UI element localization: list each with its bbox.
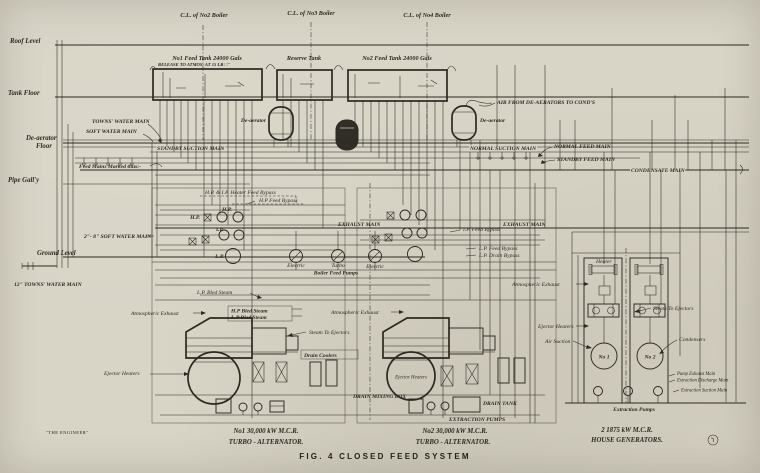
deaerator-right-vessel [452, 106, 476, 140]
reserve-tank [277, 70, 332, 100]
unit1-type-label: TURBO - ALTERNATOR. [229, 439, 304, 446]
pipe-gallery-label: Pipe Gall'y [8, 177, 40, 184]
feed-mains-marked-label: Feed Mains Marked thus:- [79, 164, 141, 170]
heater-cluster-2: I.P. Feed Bypass L.P. Feed Bypass L.P. D… [372, 210, 520, 262]
atmos-exhaust-right-label: Atmospheric Exhaust [511, 282, 560, 288]
deaerator-floor-label-2: Floor [36, 143, 52, 150]
pump-exhaust-main-label: Pump Exhaust Main [676, 372, 716, 377]
unit2-rating-label: No2 30,000 kW M.C.R. [421, 428, 487, 435]
extraction-suction-main-label: Extraction Suction Main [680, 389, 728, 394]
condensate-main-label: CONDENSATE MAIN [631, 168, 686, 174]
cl-no2-boiler-label: C.L. of No2 Boiler [180, 12, 228, 19]
closed-feed-system-diagram: Roof Level Tank Floor De-aerator Floor P… [0, 0, 760, 473]
drain-mixing-box-label: DRAIN MIXING BOX [352, 394, 406, 400]
bypass-hp-label: H.P Feed Bypass [258, 198, 298, 204]
atmos-exhaust-center-label: Atmospheric Exhaust [330, 310, 379, 316]
extraction-discharge-main-label: Extraction Discharge Main [676, 379, 729, 384]
heater-cluster-1: H.P. & I.P. Heater Feed Bypass H.P Feed … [189, 190, 304, 264]
boiler-feed-pumps: Electric Turbo Electric Boiler Feed Pump… [286, 231, 384, 277]
printers-mark [708, 435, 718, 445]
soft-water-2-8-label: 2"- 8" SOFT WATER MAIN [83, 234, 152, 240]
ip-label: I.P. [215, 227, 224, 233]
scanned-diagram-page: Roof Level Tank Floor De-aerator Floor P… [0, 0, 760, 473]
standby-feed-main-label: STANDBY FEED MAIN [557, 157, 616, 163]
bypass-lp-drain-label: L.P. Drain Bypass [478, 253, 520, 259]
ground-level-label: Ground Level [37, 250, 76, 257]
house-heater-label: Heater [595, 259, 612, 265]
cl-no4-boiler-label: C.L. of No4 Boiler [403, 12, 451, 19]
unit1-rating-label: No1 30,000 kW M.C.R. [232, 428, 298, 435]
ejector-heaters-mid-label: Ejector Heaters [394, 376, 427, 381]
lp-bled-steam-2-label: L.P Bled Steam [230, 315, 267, 321]
turbo-alternator-2: Ejector Heaters [383, 318, 495, 400]
air-from-deaerators-label: AIR FROM DE-AERATORS TO COND'S [496, 100, 595, 106]
steam-annotations: L.P. Bled Steam H.P Bled Steam L.P Bled … [130, 282, 694, 337]
bypass-hp-ip-label: H.P. & I.P. Heater Feed Bypass [204, 190, 276, 196]
unit-bottom-equipment: DRAIN MIXING BOX DRAIN TANK EXTRACTION P… [216, 394, 518, 423]
electric-pump-2-label: Electric [365, 264, 384, 270]
no2-feed-tank-label: No2 Feed Tank 24000 Gals [361, 55, 432, 62]
drain-tank-label: DRAIN TANK [482, 401, 518, 407]
bypass-lp-feed-label: L.P. Feed Bypass [478, 246, 517, 252]
feed-tanks: No1 Feed Tank 24000 Gals RELEASE TO ATMO… [150, 55, 456, 101]
roof-level-label: Roof Level [9, 38, 40, 45]
exhaust-main-right-label: EXHAUST MAIN [502, 222, 546, 228]
unit2-type-label: TURBO - ALTERNATOR. [416, 439, 491, 446]
hp-top-label: H.P. [221, 207, 232, 213]
no1-release-label: RELEASE TO ATMOS: AT 15 LB □" [158, 62, 230, 67]
reserve-tank-label: Reserve Tank [286, 55, 322, 62]
atmos-exhaust-left-label: Atmospheric Exhaust [130, 311, 179, 317]
extraction-pumps-center-label: EXTRACTION PUMPS [448, 417, 505, 423]
extraction-pumps-house-label: Extraction Pumps [612, 407, 655, 413]
condenser-dome-1 [188, 352, 240, 404]
house-rating-label: 2 1875 kW M.C.R. [600, 427, 653, 434]
no1-feed-tank-label: No1 Feed Tank 24000 Gals [171, 55, 242, 62]
electric-pump-1-label: Electric [286, 263, 305, 269]
normal-suction-main-label: NORMAL SUCTION MAIN [469, 146, 537, 152]
boiler-feed-pumps-label: Boiler Feed Pumps [313, 271, 358, 277]
condenser-no2-label: No 2 [643, 355, 655, 361]
bypass-ip-label: I.P. Feed Bypass [462, 227, 500, 233]
towns-water-main-label: TOWNS' WATER MAIN [92, 119, 150, 125]
deaerator-right-label: De-aerator [479, 118, 506, 124]
lp-bled-steam-label: L.P. Bled Steam [196, 290, 232, 296]
condenser-no1-label: No 1 [597, 355, 609, 361]
captions: No1 30,000 kW M.C.R. TURBO - ALTERNATOR.… [46, 427, 663, 461]
alternator-1 [252, 328, 286, 354]
drain-tank [453, 397, 480, 412]
lp-label: L.P. [214, 254, 224, 260]
hp-left-label: H.P. [189, 215, 200, 221]
hp-bled-steam-label: H.P Bled Steam [230, 309, 268, 315]
figure-caption: FIG. 4 CLOSED FEED SYSTEM [299, 452, 470, 461]
steam-to-ejectors-left-label: Steam To Ejectors [309, 330, 350, 336]
turbo-pump-label: Turbo [331, 263, 345, 269]
soft-water-main-label: SOFT WATER MAIN [86, 129, 138, 135]
deaerator-floor-label-1: De-aerator [25, 135, 57, 142]
alternator-2 [449, 328, 483, 354]
no2-feed-tank [348, 70, 447, 101]
tank-floor-label: Tank Floor [8, 90, 40, 97]
drain-coolers-label: Drain Coolers [303, 353, 337, 359]
deaerator-left-vessel [269, 107, 293, 140]
pipe-mains: TOWNS' WATER MAIN SOFT WATER MAIN STANDB… [63, 100, 749, 228]
no1-feed-tank [153, 69, 262, 100]
house-generators-section: Heater Ejector Heaters Air Suction No 1 … [537, 140, 749, 445]
deaerator-mid-vessel [336, 120, 358, 150]
condensers-label: Condensers [679, 337, 705, 343]
source-label: "THE ENGINEER" [46, 430, 88, 435]
air-suction-label: Air Suction [544, 339, 571, 345]
normal-feed-main-label: NORMAL FEED MAIN [553, 144, 612, 150]
cl-no3-boiler-label: C.L. of No3 Boiler [287, 10, 335, 17]
ejector-heaters-left-label: Ejector Heaters [103, 371, 140, 377]
boiler-centre-lines: C.L. of No2 Boiler C.L. of No3 Boiler C.… [180, 10, 451, 140]
towns-water-12-label: 12" TOWNS' WATER MAIN [14, 282, 83, 288]
ejector-heaters-right-label: Ejector Heaters [537, 324, 574, 330]
turbo-alternator-1: Ejector Heaters [103, 318, 298, 404]
house-type-label: HOUSE GENERATORS. [590, 437, 663, 444]
